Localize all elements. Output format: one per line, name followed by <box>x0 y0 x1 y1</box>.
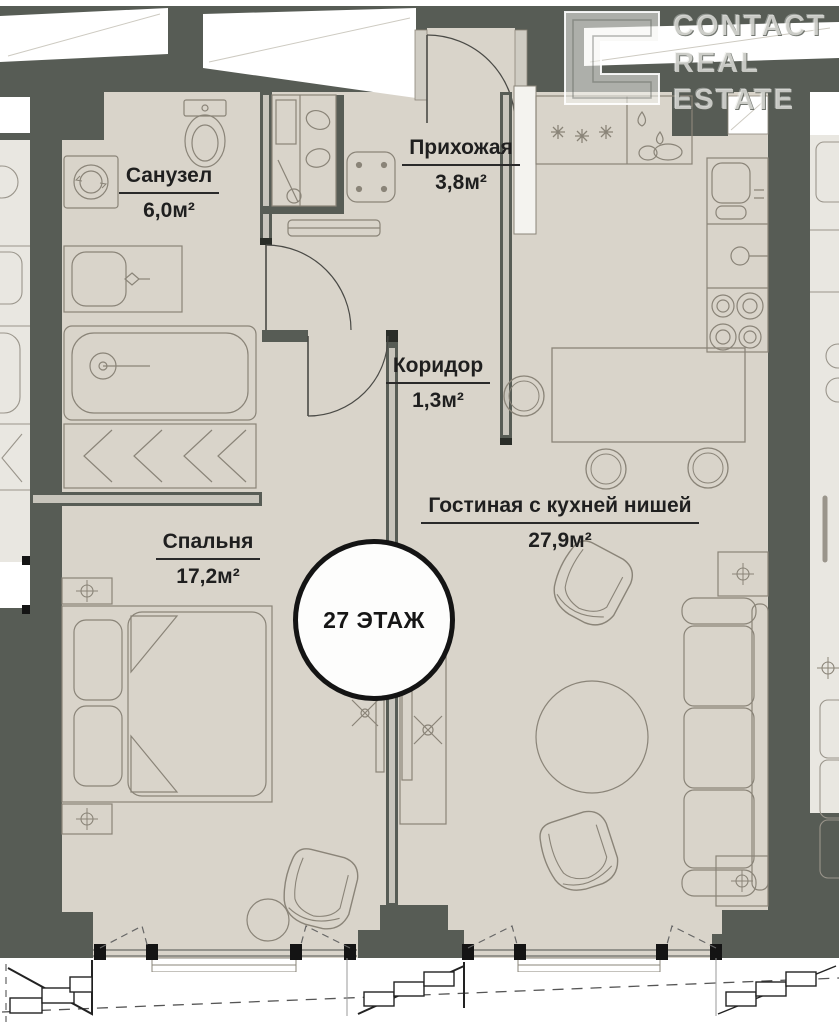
room-area: 1,3м² <box>368 389 508 413</box>
floor-plan-page: Санузел 6,0м² Прихожая 3,8м² Коридор 1,3… <box>0 0 839 1024</box>
room-name: Гостиная с кухней нишей <box>421 494 698 524</box>
room-name: Спальня <box>156 530 261 560</box>
room-label-bedroom: Спальня 17,2м² <box>138 530 278 589</box>
room-name: Санузел <box>119 164 219 194</box>
room-name: Коридор <box>386 354 490 384</box>
room-label-hallway: Прихожая 3,8м² <box>386 136 536 195</box>
room-area: 17,2м² <box>138 565 278 589</box>
room-area: 6,0м² <box>104 199 234 223</box>
room-area: 27,9м² <box>420 529 700 553</box>
floor-number-label: 27 ЭТАЖ <box>323 607 425 634</box>
logo-line-1: CONTACT <box>673 8 827 45</box>
logo-line-2: REAL <box>673 45 827 82</box>
room-label-bathroom: Санузел 6,0м² <box>104 164 234 223</box>
floor-number-badge: 27 ЭТАЖ <box>293 539 455 701</box>
room-area: 3,8м² <box>386 171 536 195</box>
room-label-living: Гостиная с кухней нишей 27,9м² <box>420 494 700 553</box>
room-label-corridor: Коридор 1,3м² <box>368 354 508 413</box>
logo-line-3: ESTATE <box>673 82 827 119</box>
contact-logo-icon <box>563 8 663 108</box>
room-name: Прихожая <box>402 136 520 166</box>
right-neighbor-floor <box>810 135 839 813</box>
agency-name: CONTACT REAL ESTATE <box>673 8 827 119</box>
agency-watermark: CONTACT REAL ESTATE <box>563 8 827 119</box>
left-neighbor-floor <box>0 135 30 562</box>
